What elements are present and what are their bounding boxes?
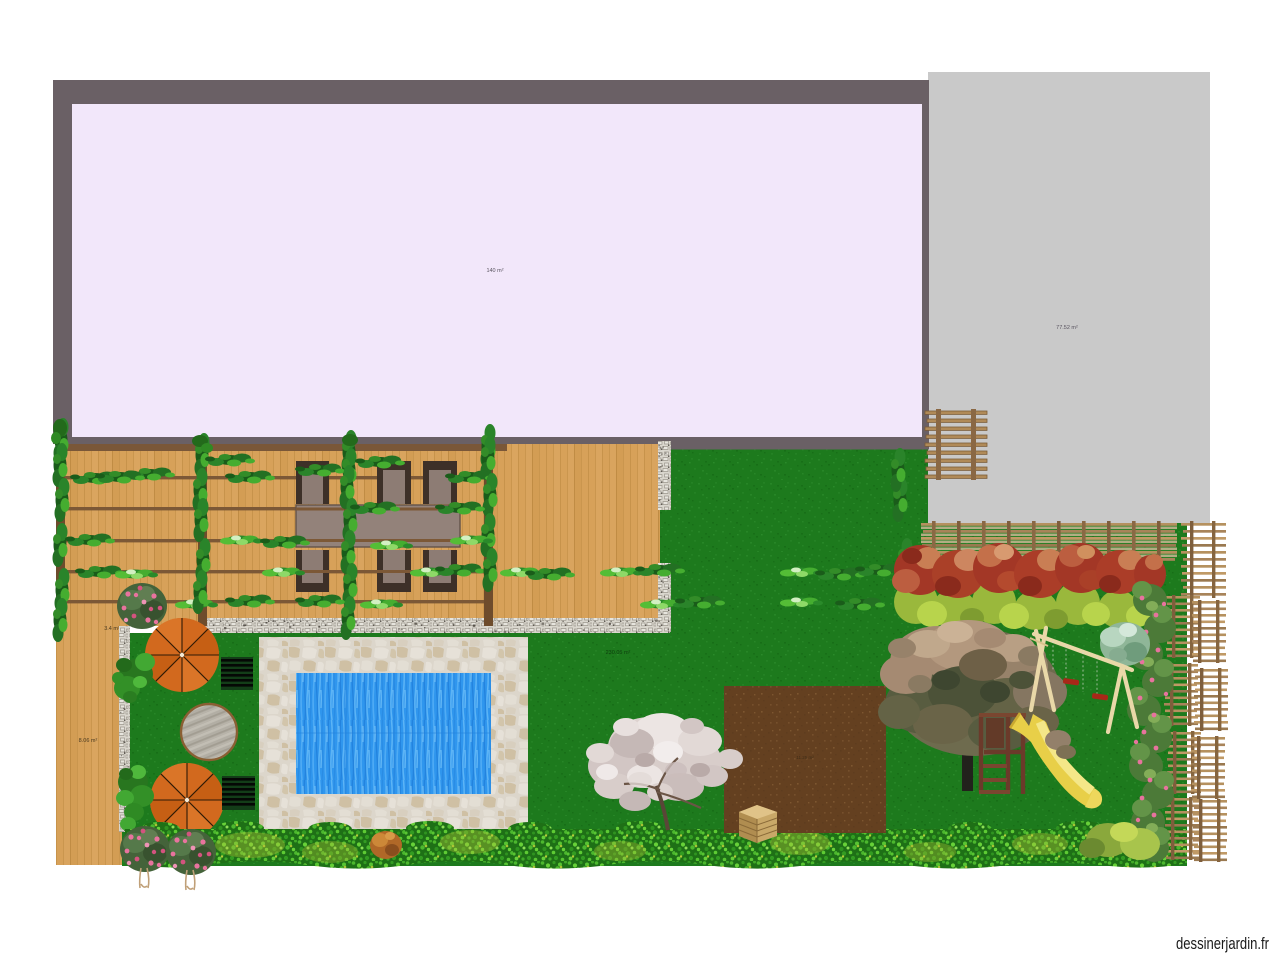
svg-text:77.52 m²: 77.52 m² xyxy=(1056,325,1078,331)
svg-text:dessinerjardin.fr: dessinerjardin.fr xyxy=(1176,935,1269,953)
svg-text:230.05 m²: 230.05 m² xyxy=(606,650,631,656)
svg-text:8.06 m²: 8.06 m² xyxy=(79,738,98,744)
svg-text:11.25 m²: 11.25 m² xyxy=(796,755,814,760)
svg-text:3.4 m²: 3.4 m² xyxy=(104,626,120,632)
svg-text:140 m²: 140 m² xyxy=(486,268,503,274)
